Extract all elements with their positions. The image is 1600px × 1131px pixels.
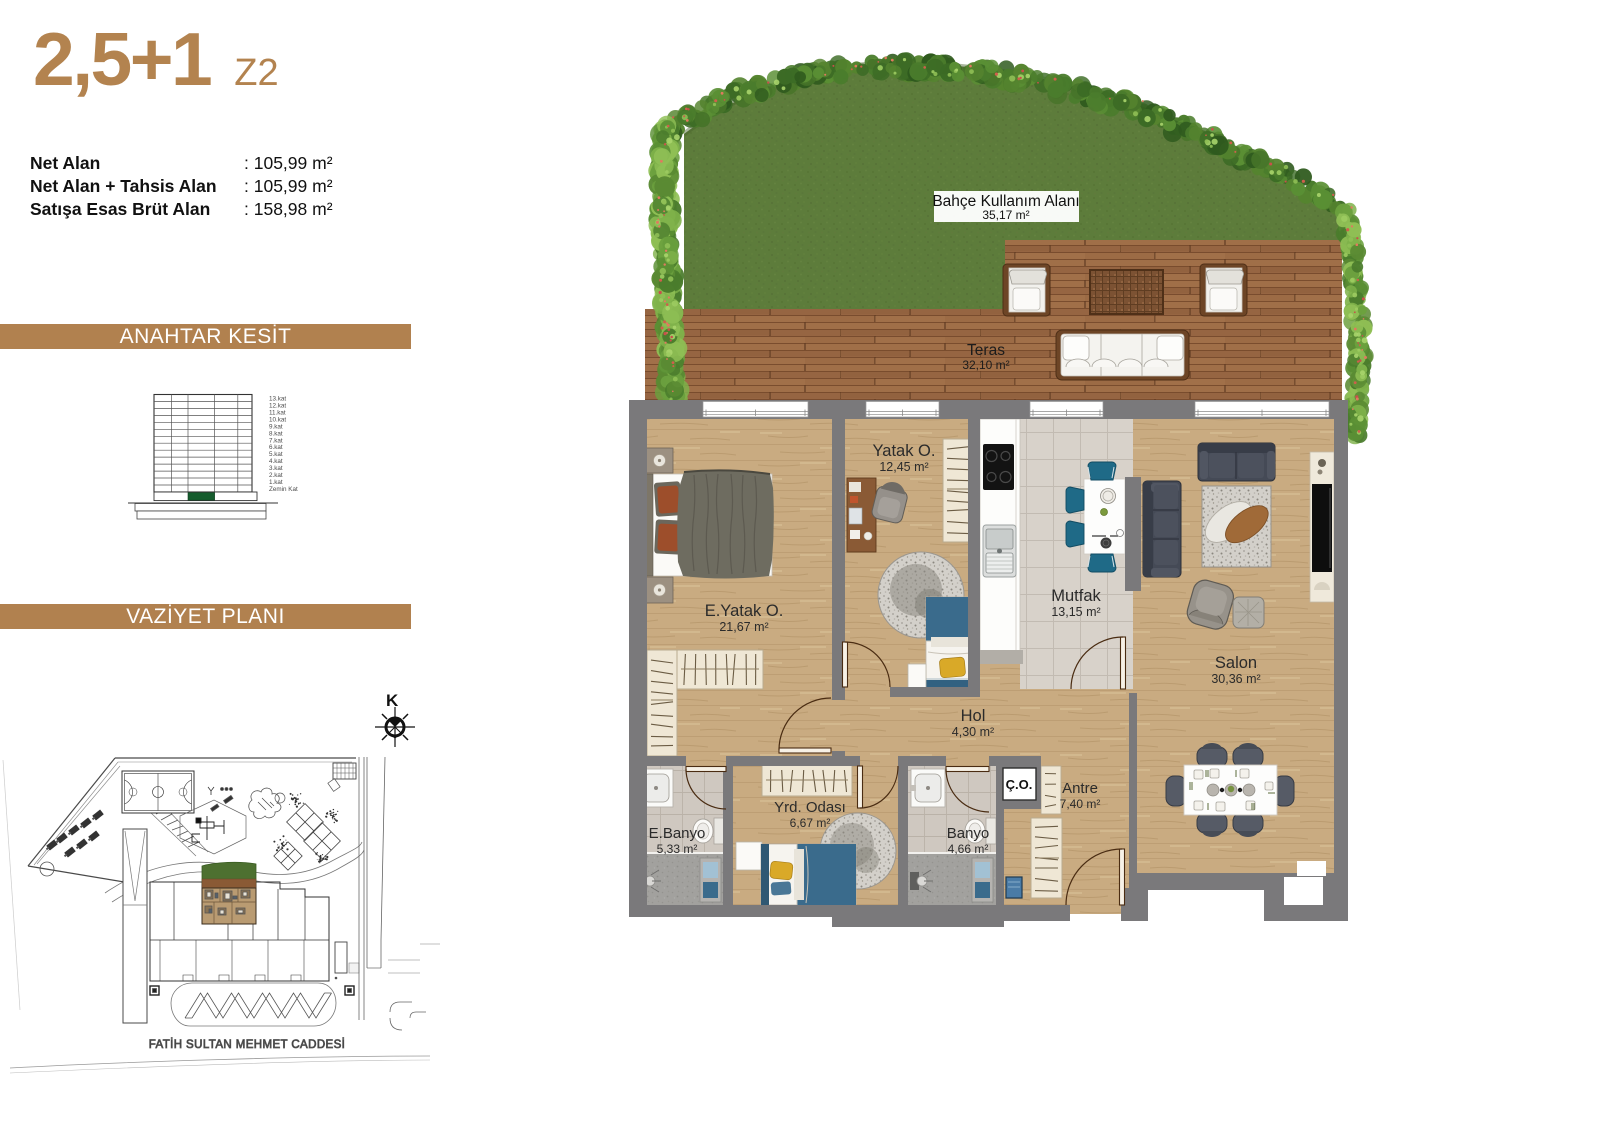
- svg-text:Salon: Salon: [1215, 654, 1257, 672]
- svg-text:4,30 m²: 4,30 m²: [952, 725, 994, 739]
- svg-text:4,66 m²: 4,66 m²: [948, 842, 989, 856]
- svg-text:30,36 m²: 30,36 m²: [1211, 672, 1260, 686]
- svg-text:Yrd. Odası: Yrd. Odası: [774, 799, 846, 816]
- svg-text:Teras: Teras: [967, 342, 1005, 359]
- svg-text:Ç.O.: Ç.O.: [1006, 777, 1033, 792]
- svg-text:6,67 m²: 6,67 m²: [790, 816, 831, 830]
- svg-text:5,33 m²: 5,33 m²: [657, 842, 698, 856]
- svg-text:Zemin Kat: Zemin Kat: [269, 486, 298, 493]
- svg-text:Banyo: Banyo: [947, 825, 990, 842]
- svg-text:13,15 m²: 13,15 m²: [1051, 605, 1100, 619]
- svg-text:Mutfak: Mutfak: [1051, 587, 1101, 605]
- svg-text:11.kat: 11.kat: [269, 409, 286, 416]
- svg-text:4.kat: 4.kat: [269, 458, 283, 465]
- svg-text:Antre: Antre: [1062, 780, 1098, 797]
- svg-text:3.kat: 3.kat: [269, 465, 283, 472]
- svg-text:6.kat: 6.kat: [269, 444, 283, 451]
- svg-text:35,17 m²: 35,17 m²: [982, 208, 1029, 222]
- svg-text:E.Banyo: E.Banyo: [649, 825, 706, 842]
- svg-text:7,40 m²: 7,40 m²: [1060, 797, 1101, 811]
- svg-text:32,10 m²: 32,10 m²: [962, 358, 1009, 372]
- svg-text:FATİH SULTAN MEHMET CADDESİ: FATİH SULTAN MEHMET CADDESİ: [149, 1038, 346, 1051]
- svg-text:12,45 m²: 12,45 m²: [879, 460, 928, 474]
- svg-text:E.Yatak O.: E.Yatak O.: [705, 602, 784, 620]
- svg-text:8.kat: 8.kat: [269, 430, 283, 437]
- svg-text:13.kat: 13.kat: [269, 396, 286, 403]
- svg-text:Yatak O.: Yatak O.: [873, 442, 936, 460]
- svg-text:9.kat: 9.kat: [269, 423, 283, 430]
- svg-text:K: K: [386, 691, 399, 710]
- svg-text:Hol: Hol: [961, 707, 986, 725]
- svg-text:1.kat: 1.kat: [269, 479, 283, 486]
- svg-text:21,67 m²: 21,67 m²: [719, 620, 768, 634]
